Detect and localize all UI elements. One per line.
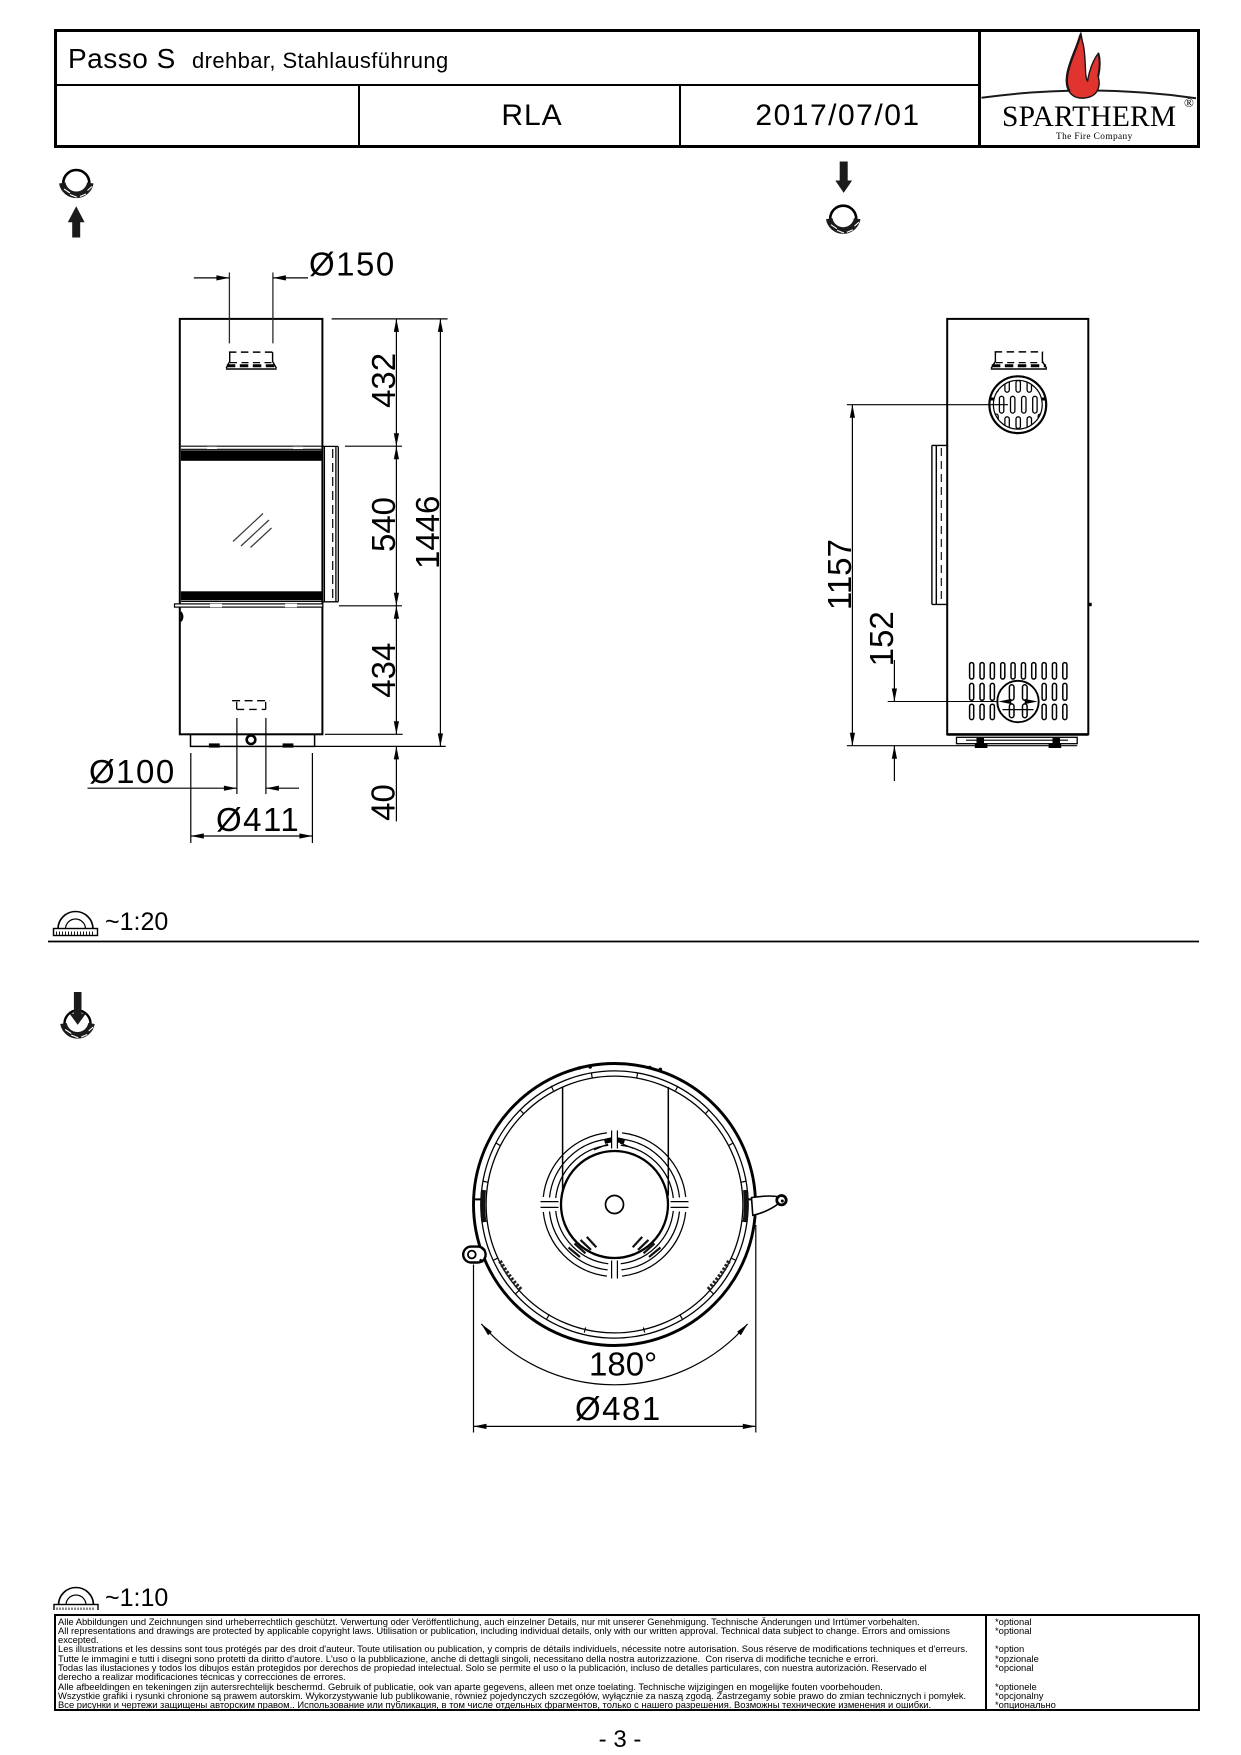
svg-text:Ø150: Ø150: [309, 246, 396, 283]
svg-text:540: 540: [365, 497, 402, 552]
svg-text:1157: 1157: [821, 539, 858, 610]
svg-text:Ø481: Ø481: [575, 1390, 662, 1427]
svg-text:Ø100: Ø100: [89, 753, 176, 790]
svg-text:432: 432: [365, 353, 402, 408]
svg-text:152: 152: [863, 611, 900, 666]
svg-text:1446: 1446: [409, 496, 446, 569]
svg-text:Ø411: Ø411: [216, 801, 300, 838]
svg-text:434: 434: [365, 643, 402, 698]
svg-text:~1:20: ~1:20: [105, 908, 168, 936]
svg-text:~1:10: ~1:10: [105, 1584, 168, 1610]
svg-text:40: 40: [365, 784, 402, 821]
svg-text:180°: 180°: [589, 1346, 657, 1383]
